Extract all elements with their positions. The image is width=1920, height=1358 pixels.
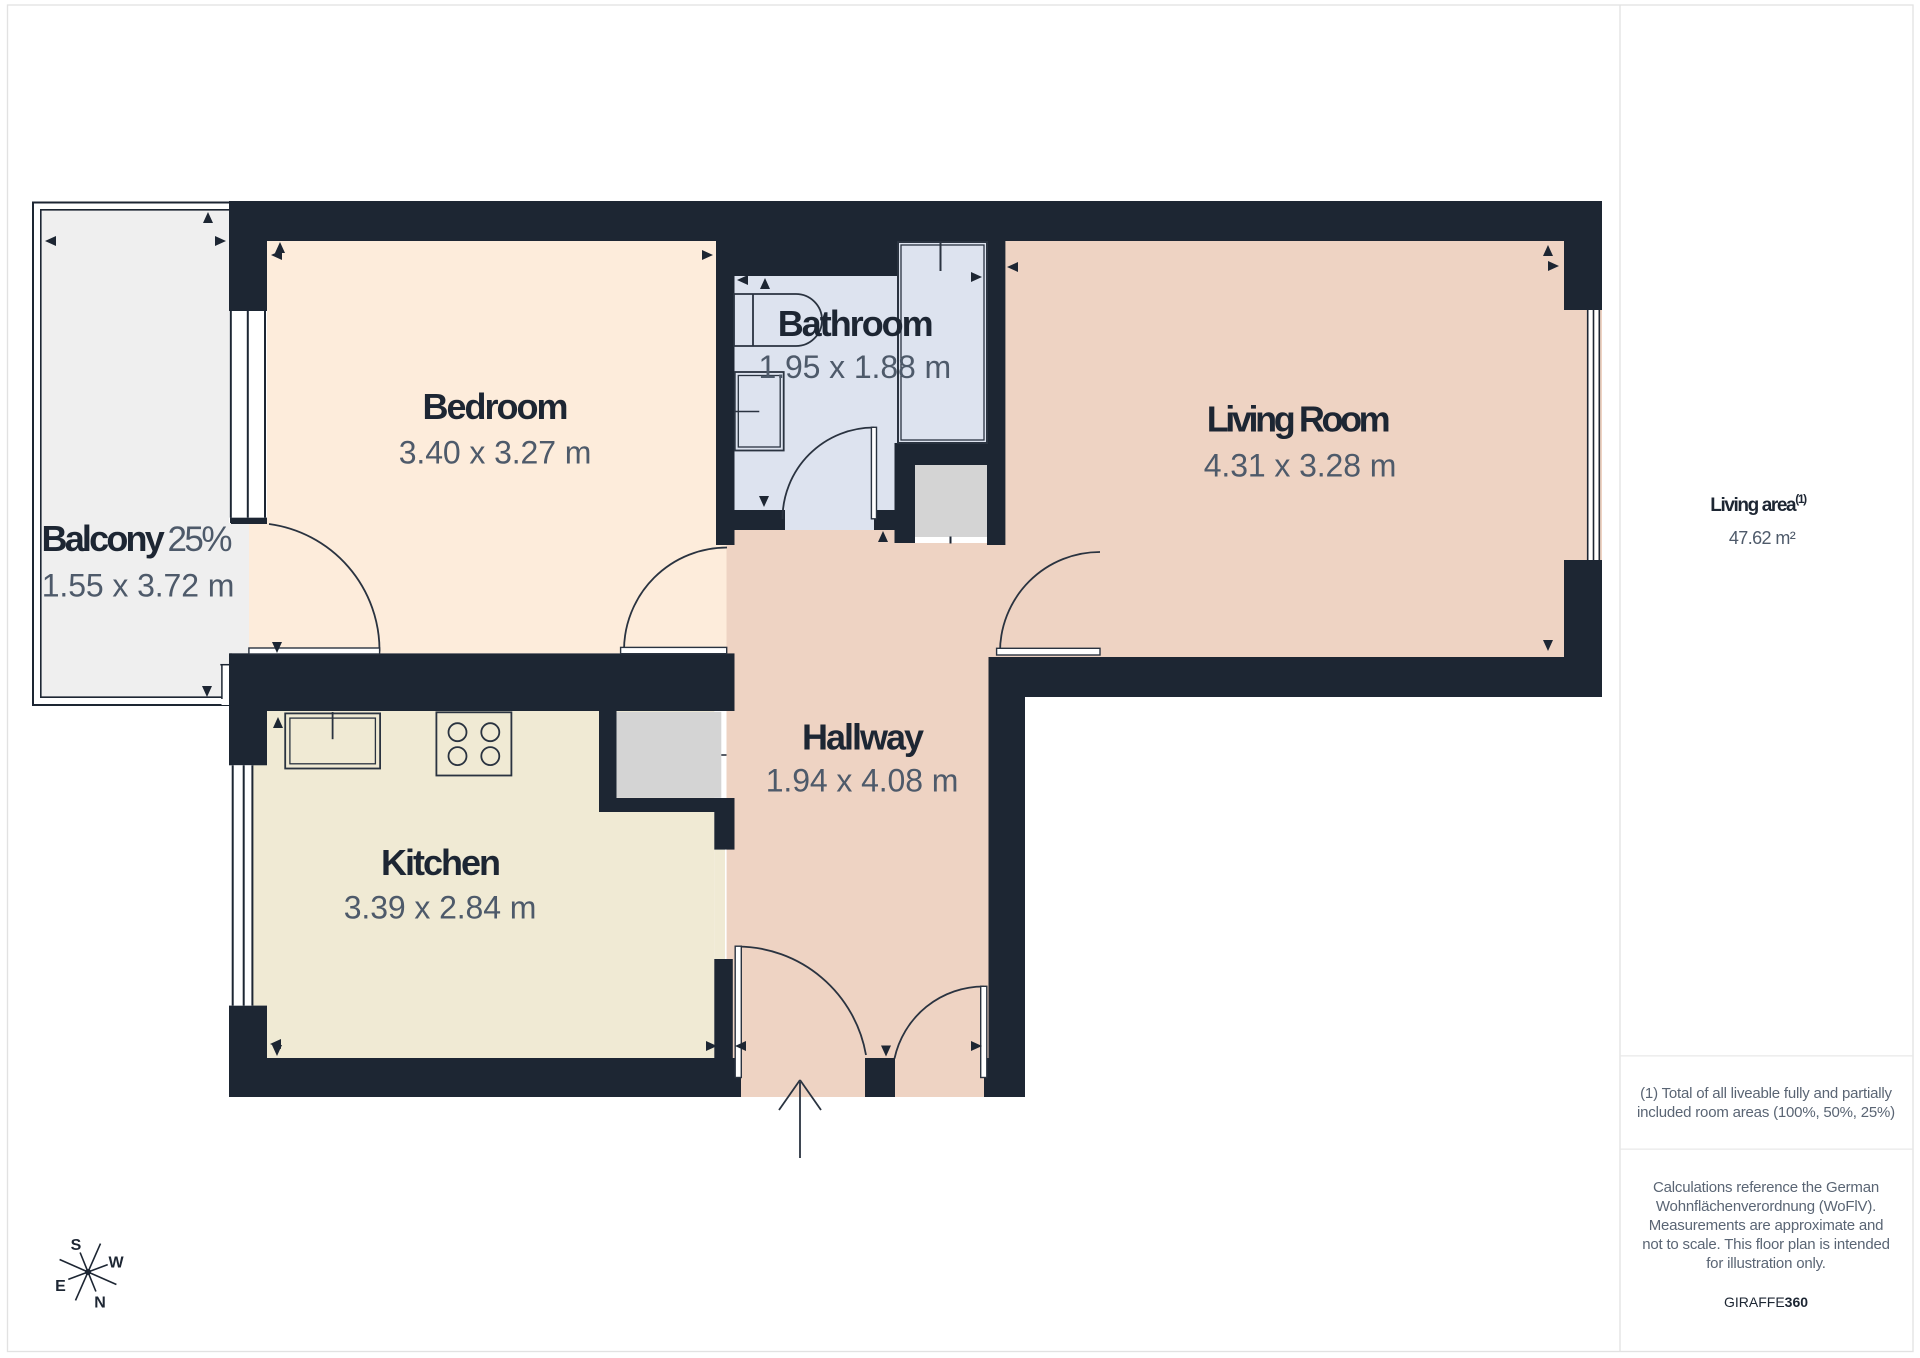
svg-text:Living area(1): Living area(1) <box>1710 492 1807 516</box>
svg-text:Living Room: Living Room <box>1207 399 1389 440</box>
svg-text:included room areas (100%, 50%: included room areas (100%, 50%, 25%) <box>1637 1104 1895 1121</box>
svg-text:N: N <box>94 1295 106 1312</box>
svg-text:E: E <box>55 1278 66 1295</box>
svg-text:1.94 x 4.08 m: 1.94 x 4.08 m <box>766 763 959 799</box>
svg-text:W: W <box>108 1255 124 1272</box>
svg-text:S: S <box>71 1237 82 1254</box>
svg-text:Wohnflächenverordnung (WoFlV).: Wohnflächenverordnung (WoFlV). <box>1656 1198 1876 1215</box>
svg-text:Bathroom: Bathroom <box>778 303 932 344</box>
svg-text:GIRAFFE360: GIRAFFE360 <box>1724 1294 1808 1310</box>
svg-text:for illustration only.: for illustration only. <box>1706 1255 1826 1272</box>
svg-text:(1) Total of all liveable full: (1) Total of all liveable fully and part… <box>1640 1085 1892 1102</box>
svg-text:Hallway: Hallway <box>802 717 924 758</box>
svg-text:25%: 25% <box>167 520 231 559</box>
svg-text:Bedroom: Bedroom <box>422 386 566 427</box>
svg-text:1.55 x 3.72 m: 1.55 x 3.72 m <box>42 568 235 604</box>
svg-text:Kitchen: Kitchen <box>381 842 499 883</box>
svg-text:47.62 m²: 47.62 m² <box>1729 528 1796 548</box>
svg-text:1.95 x 1.88 m: 1.95 x 1.88 m <box>759 349 952 385</box>
svg-text:3.40 x 3.27 m: 3.40 x 3.27 m <box>399 434 592 470</box>
svg-text:Measurements are approximate a: Measurements are approximate and <box>1649 1217 1884 1234</box>
svg-text:Balcony: Balcony <box>42 518 165 559</box>
svg-text:4.31 x 3.28 m: 4.31 x 3.28 m <box>1204 448 1397 484</box>
svg-text:not to scale. This floor plan: not to scale. This floor plan is intende… <box>1642 1236 1890 1253</box>
svg-text:3.39 x 2.84 m: 3.39 x 2.84 m <box>344 890 537 926</box>
svg-text:Calculations reference the Ger: Calculations reference the German <box>1653 1179 1879 1196</box>
